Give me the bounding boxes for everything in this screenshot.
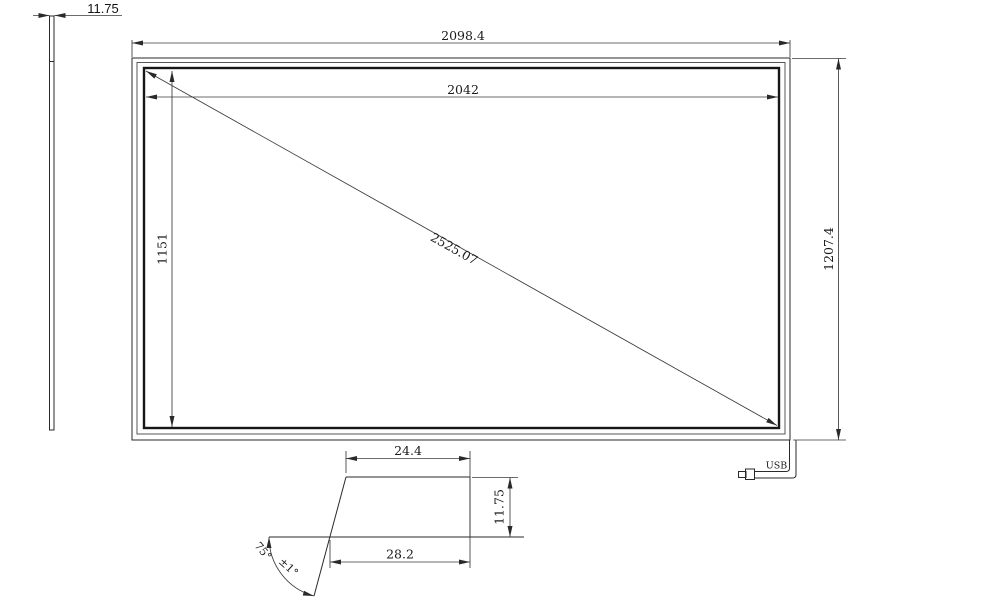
usb-label: USB (766, 461, 788, 472)
drawing-canvas: 11.75 2525.07 2098.4 2042 1151 (0, 0, 1000, 603)
dim-active-height: 1151 (155, 71, 173, 427)
usb-connector-body (746, 469, 755, 480)
dim-section-angle-tolerance-label: ±1° (276, 555, 301, 579)
usb-cable: USB (739, 440, 797, 480)
dim-active-height-label: 1151 (155, 233, 170, 265)
dim-section-angle-label: 75° (252, 540, 274, 563)
dim-diagonal: 2525.07 (146, 71, 777, 426)
dim-active-width-label: 2042 (447, 82, 479, 97)
section-view: 24.4 11.75 28.2 75° ±1° (252, 443, 524, 596)
technical-drawing: 11.75 2525.07 2098.4 2042 1151 (0, 0, 1000, 603)
side-view: 11.75 (33, 1, 122, 430)
usb-connector-tip (739, 472, 747, 478)
dim-diagonal-label: 2525.07 (428, 229, 480, 267)
dim-side-thickness: 11.75 (33, 1, 122, 16)
dim-active-width: 2042 (146, 82, 778, 97)
dim-section-thickness: 11.75 (472, 478, 518, 538)
side-profile-bar (50, 16, 55, 430)
dim-section-bottom-width-label: 28.2 (386, 547, 414, 562)
dim-outer-height: 1207.4 (792, 59, 846, 441)
dim-outer-height-label: 1207.4 (821, 227, 836, 271)
dim-section-thickness-label: 11.75 (492, 489, 507, 525)
dim-outer-width-label: 2098.4 (441, 28, 485, 43)
dim-section-bottom-width: 28.2 (330, 540, 470, 568)
dim-section-top-width-label: 24.4 (394, 443, 422, 458)
front-view: 2525.07 2098.4 2042 1151 1207.4 (132, 28, 846, 480)
dim-outer-width: 2098.4 (132, 28, 790, 57)
dim-side-thickness-label: 11.75 (87, 1, 119, 16)
dim-section-angle: 75° ±1° (252, 537, 314, 596)
